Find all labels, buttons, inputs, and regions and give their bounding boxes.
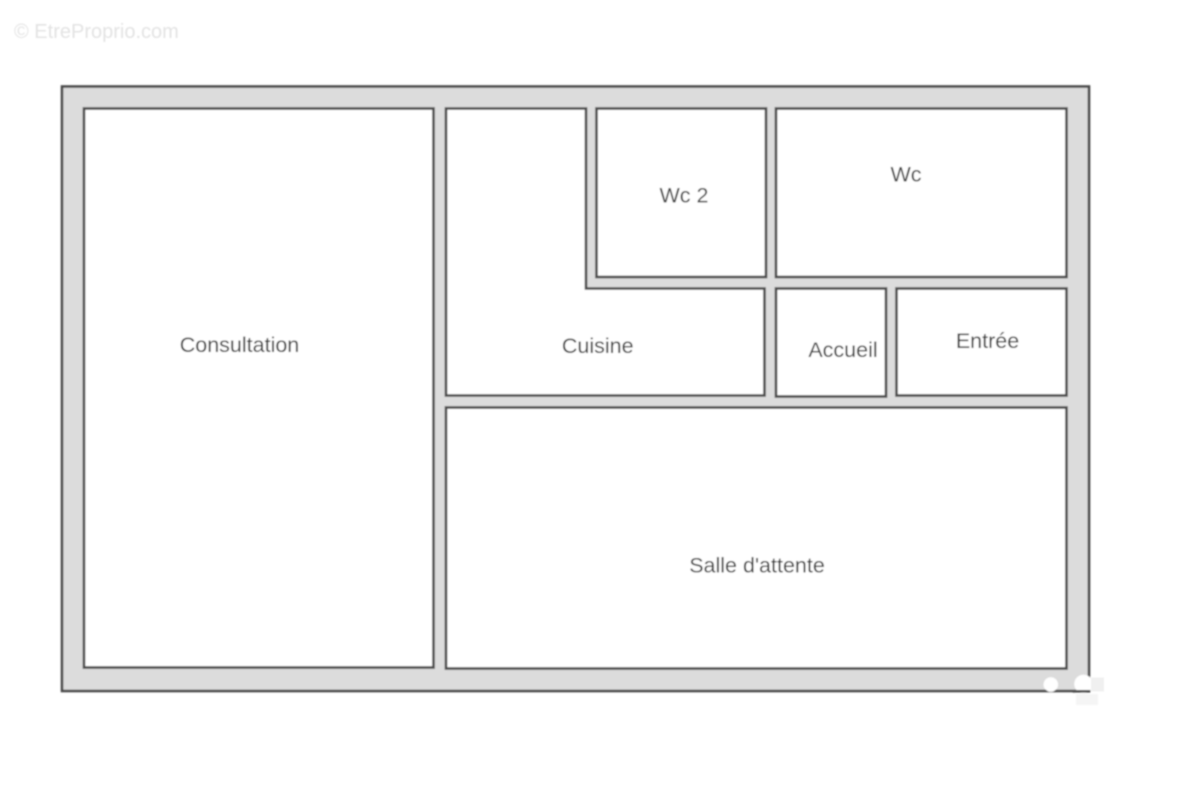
svg-text:Accueil: Accueil <box>808 338 877 362</box>
svg-text:Entrée: Entrée <box>956 329 1019 353</box>
svg-text:Wc: Wc <box>890 163 921 187</box>
svg-text:Salle d'attente: Salle d'attente <box>689 554 825 578</box>
svg-text:© EtreProprio.com: © EtreProprio.com <box>14 21 179 43</box>
svg-text:Wc 2: Wc 2 <box>660 184 709 208</box>
svg-text:Cuisine: Cuisine <box>562 334 634 358</box>
svg-text:Consultation: Consultation <box>180 333 300 357</box>
